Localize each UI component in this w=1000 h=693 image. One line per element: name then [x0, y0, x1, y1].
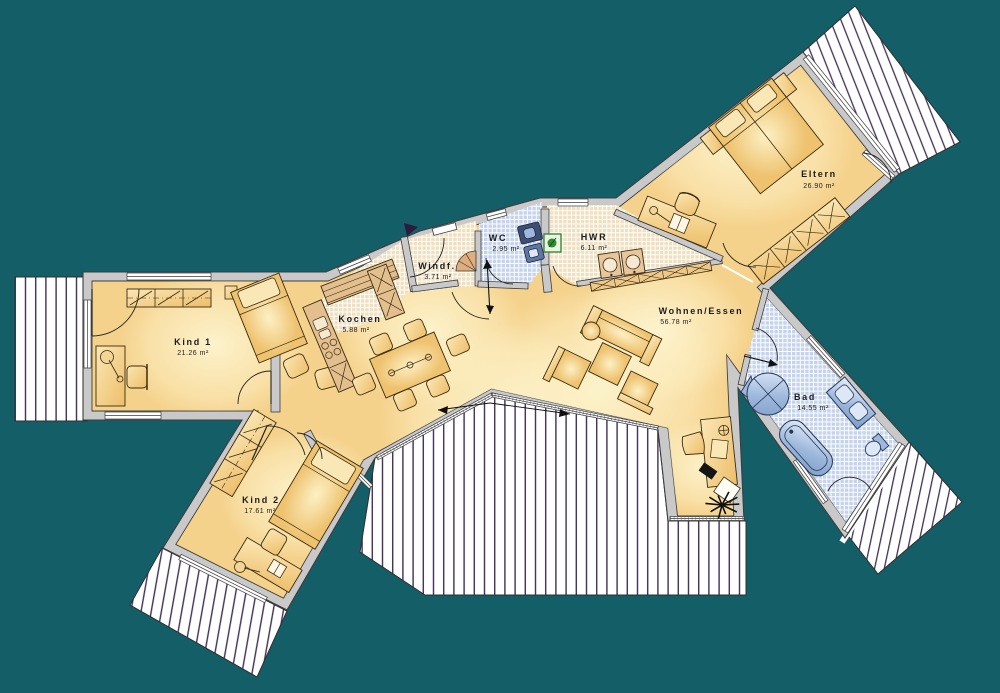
- svg-text:26.90 m²: 26.90 m²: [803, 183, 835, 190]
- svg-text:17.61 m²: 17.61 m²: [244, 508, 276, 515]
- svg-text:Wohnen/Essen: Wohnen/Essen: [659, 306, 744, 316]
- svg-text:3.71 m²: 3.71 m²: [424, 274, 451, 281]
- svg-text:5.88 m²: 5.88 m²: [342, 327, 369, 334]
- svg-text:WC: WC: [489, 233, 507, 243]
- svg-text:Kind 2: Kind 2: [242, 495, 280, 505]
- svg-text:56.78 m²: 56.78 m²: [660, 319, 692, 326]
- svg-text:Bad: Bad: [794, 392, 816, 402]
- svg-text:HWR: HWR: [581, 232, 608, 242]
- svg-text:Kochen: Kochen: [338, 314, 381, 324]
- svg-text:6.11 m²: 6.11 m²: [581, 245, 608, 252]
- svg-text:2.95 m²: 2.95 m²: [492, 246, 519, 253]
- svg-text:21.26 m²: 21.26 m²: [177, 350, 209, 357]
- svg-text:Windf.: Windf.: [418, 261, 456, 271]
- svg-text:Kind 1: Kind 1: [174, 337, 212, 347]
- svg-text:14.55 m²: 14.55 m²: [797, 405, 829, 412]
- svg-text:Eltern: Eltern: [801, 169, 837, 179]
